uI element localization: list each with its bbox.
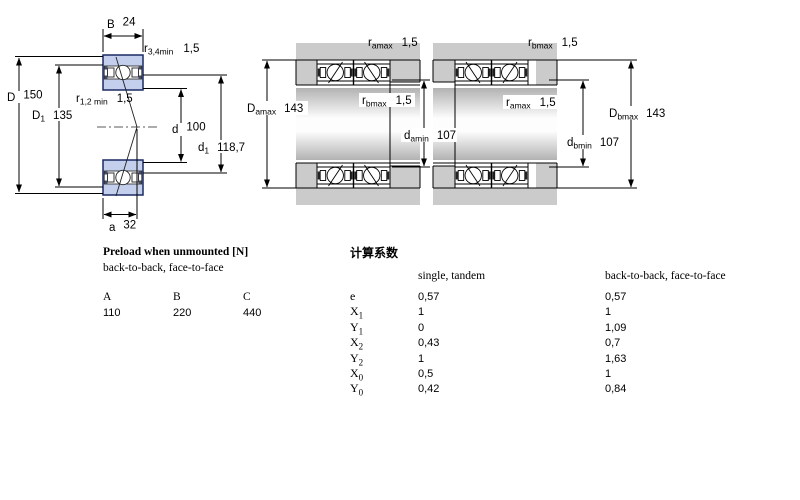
- preload-title: Preload when unmounted [N]: [103, 246, 343, 259]
- factor-row: Y101,09: [345, 320, 785, 335]
- factor-value-back-to-back: 0,57: [605, 291, 800, 303]
- factor-symbol: Y0: [345, 381, 418, 397]
- preload-subtitle: back-to-back, face-to-face: [103, 262, 343, 275]
- factor-value-single-tandem: 0,43: [418, 337, 605, 349]
- factor-value-back-to-back: 1: [605, 306, 800, 318]
- factor-symbol: Y1: [345, 320, 418, 336]
- dim-label-r12min: r1,2 min1,5: [76, 93, 133, 107]
- dim-label-B: B24: [107, 17, 136, 32]
- factor-row: Y00,420,84: [345, 381, 785, 396]
- factor-symbol: X1: [345, 304, 418, 320]
- factor-symbol: X2: [345, 335, 418, 351]
- factor-value-back-to-back: 1: [605, 368, 800, 380]
- factor-row: X00,51: [345, 366, 785, 381]
- factor-symbol: X0: [345, 366, 418, 382]
- calculation-factors-table: 计算系数 single, tandem back-to-back, face-t…: [345, 246, 785, 397]
- factor-row: Y211,63: [345, 351, 785, 366]
- factor-row: X111: [345, 304, 785, 319]
- preload-header-A: A: [103, 291, 173, 303]
- factor-value-single-tandem: 0,42: [418, 383, 605, 395]
- preload-header-B: B: [173, 291, 243, 303]
- dim-label-a: a32: [109, 220, 136, 235]
- bearing-datasheet-page: B24 r3,4min1,5 D150 D1135 r1,2 min1,5 d1…: [0, 0, 800, 500]
- factor-value-single-tandem: 1: [418, 306, 605, 318]
- factor-row: X20,430,7: [345, 335, 785, 350]
- factor-value-back-to-back: 0,7: [605, 337, 800, 349]
- preload-value-B: 220: [173, 307, 243, 319]
- factors-title: 计算系数: [345, 246, 785, 260]
- bearing-technical-drawing: B24 r3,4min1,5 D150 D1135 r1,2 min1,5 d1…: [0, 0, 800, 242]
- factors-col1-header: single, tandem: [418, 270, 605, 282]
- preload-value-C: 440: [243, 307, 313, 319]
- factor-value-single-tandem: 0,57: [418, 291, 605, 303]
- factor-value-single-tandem: 0: [418, 322, 605, 334]
- factor-symbol: Y2: [345, 351, 418, 367]
- factor-value-back-to-back: 0,84: [605, 383, 800, 395]
- preload-table: Preload when unmounted [N] back-to-back,…: [103, 246, 343, 319]
- factors-col2-header: back-to-back, face-to-face: [605, 270, 800, 282]
- single-bearing-cross-section: [97, 55, 157, 196]
- factors-rows: e0,570,57X111Y101,09X20,430,7Y211,63X00,…: [345, 289, 785, 397]
- factor-value-single-tandem: 1: [418, 353, 605, 365]
- factor-row: e0,570,57: [345, 289, 785, 304]
- factor-symbol: e: [345, 289, 418, 304]
- preload-value-A: 110: [103, 307, 173, 319]
- dim-label-D1: D1135: [32, 110, 72, 124]
- dim-label-r34min: r3,4min1,5: [144, 43, 199, 57]
- factor-value-back-to-back: 1,63: [605, 353, 800, 365]
- factor-value-back-to-back: 1,09: [605, 322, 800, 334]
- back-to-back-pair-diagram: [296, 43, 420, 205]
- face-to-face-pair-diagram: [433, 43, 557, 205]
- factor-value-single-tandem: 0,5: [418, 368, 605, 380]
- preload-header-C: C: [243, 291, 313, 303]
